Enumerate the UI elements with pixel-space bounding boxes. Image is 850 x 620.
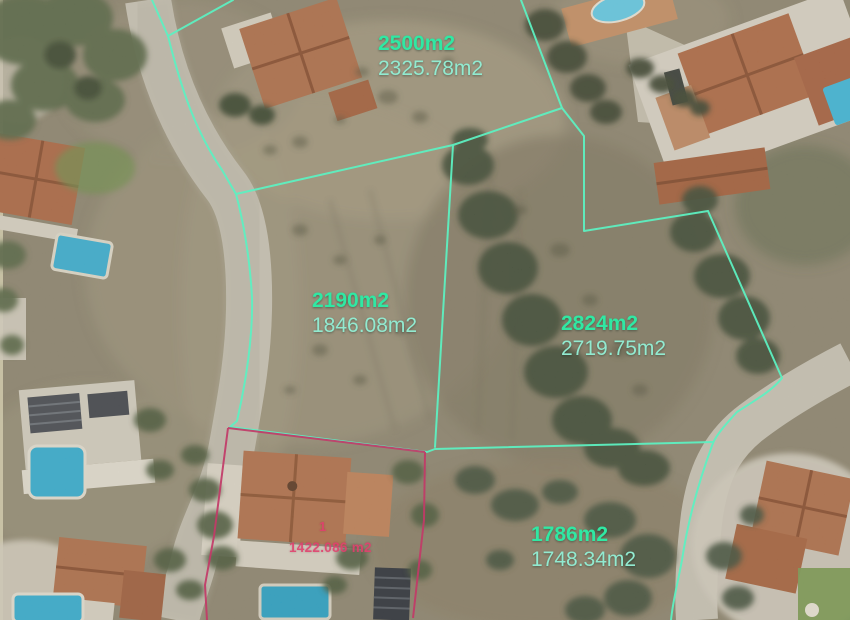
satellite-canvas <box>0 0 850 620</box>
noise-overlay <box>0 0 850 620</box>
satellite-map-view[interactable]: 2500m2 2325.78m2 2190m2 1846.08m2 2824m2… <box>0 0 850 620</box>
